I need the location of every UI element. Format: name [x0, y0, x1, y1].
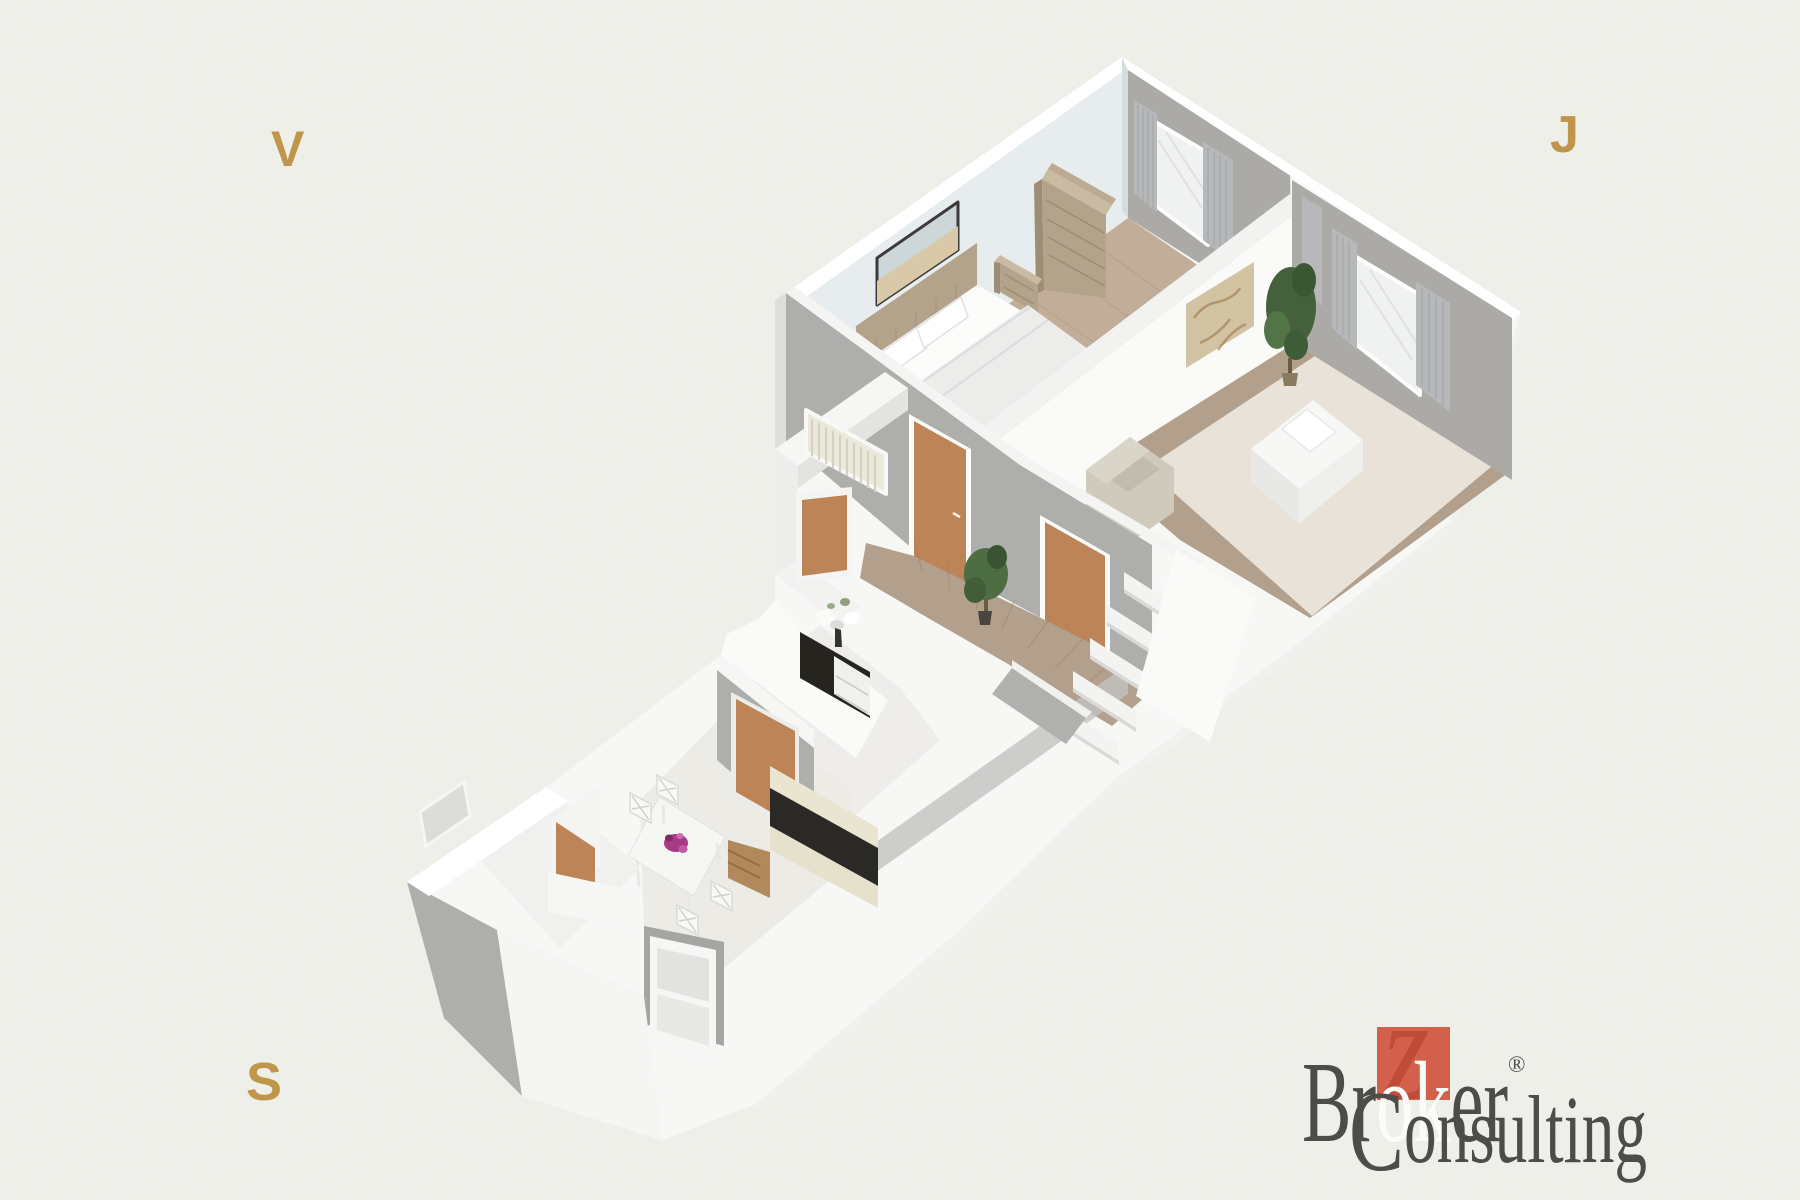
svg-text:V: V: [271, 121, 305, 177]
svg-text:S: S: [246, 1052, 282, 1112]
svg-text:®: ®: [1508, 1052, 1525, 1077]
svg-text:onsulting: onsulting: [1404, 1077, 1647, 1183]
svg-text:C: C: [1349, 1066, 1404, 1195]
svg-text:J: J: [1550, 106, 1579, 164]
